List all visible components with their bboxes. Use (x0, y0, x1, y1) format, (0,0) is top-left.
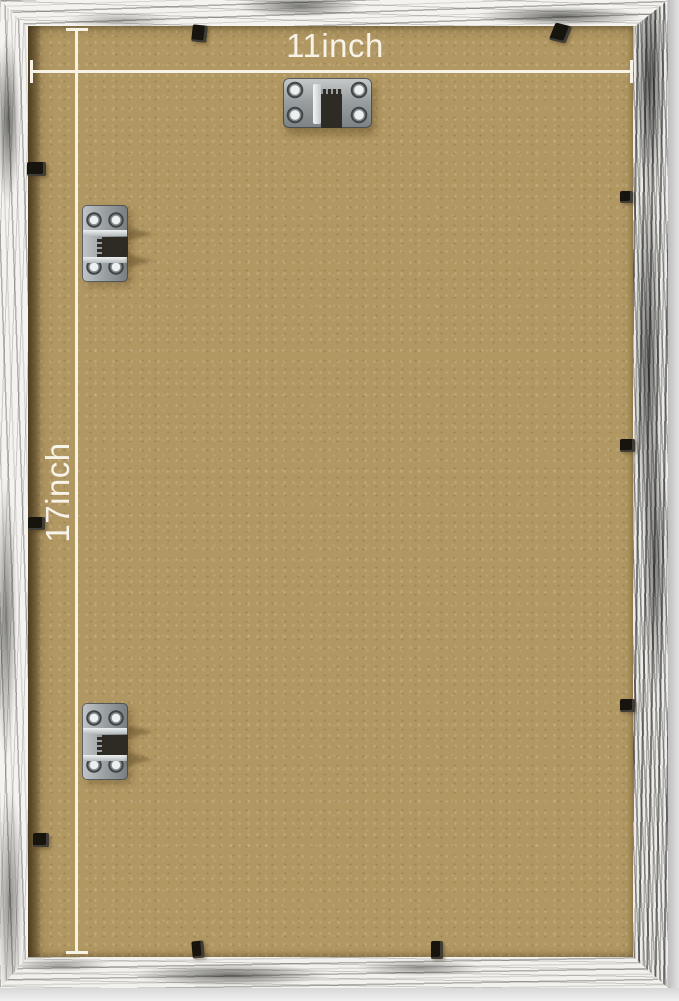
side-sawtooth-hinge-lower-icon (82, 703, 128, 780)
picture-frame-back-photo: 11inch 17inch (0, 0, 679, 1001)
mdf-backing-board (28, 26, 633, 957)
frame-bottom-side-edge (0, 988, 679, 1001)
height-dimension-endcap-bottom (66, 951, 88, 954)
retainer-clip (620, 191, 633, 203)
sawtooth-teeth (321, 89, 342, 94)
retainer-clip (620, 439, 635, 452)
screw-hole (86, 710, 102, 726)
width-dimension-endcap-left (30, 60, 33, 83)
width-dimension-line (31, 70, 632, 73)
width-dimension-endcap-right (630, 60, 633, 83)
sawtooth-hanger-icon (283, 78, 372, 128)
retainer-clip (27, 162, 46, 176)
width-dimension-label: 11inch (260, 27, 410, 65)
sawtooth-teeth (97, 237, 102, 257)
screw-hole (286, 81, 304, 99)
screw-hole (108, 710, 124, 726)
sawtooth-teeth (97, 735, 102, 755)
metal-highlight (83, 257, 127, 263)
metal-highlight (313, 84, 321, 124)
metal-highlight (83, 728, 127, 734)
screw-hole (286, 106, 304, 124)
sawtooth-notch (321, 89, 342, 128)
screw-hole (86, 212, 102, 228)
screw-hole (108, 212, 124, 228)
retainer-clip (620, 699, 635, 712)
retainer-clip (191, 24, 208, 42)
height-dimension-label: 17inch (0, 435, 115, 550)
retainer-clip (431, 941, 443, 959)
retainer-clip (191, 941, 204, 959)
metal-highlight (83, 230, 127, 236)
screw-hole (350, 106, 368, 124)
retainer-clip (33, 833, 49, 847)
frame-right-side-edge (668, 0, 679, 992)
height-dimension-endcap-top (66, 28, 88, 31)
screw-hole (350, 81, 368, 99)
height-dimension-label-text: 17inch (39, 442, 77, 542)
metal-highlight (83, 755, 127, 761)
side-sawtooth-hinge-upper-icon (82, 205, 128, 282)
